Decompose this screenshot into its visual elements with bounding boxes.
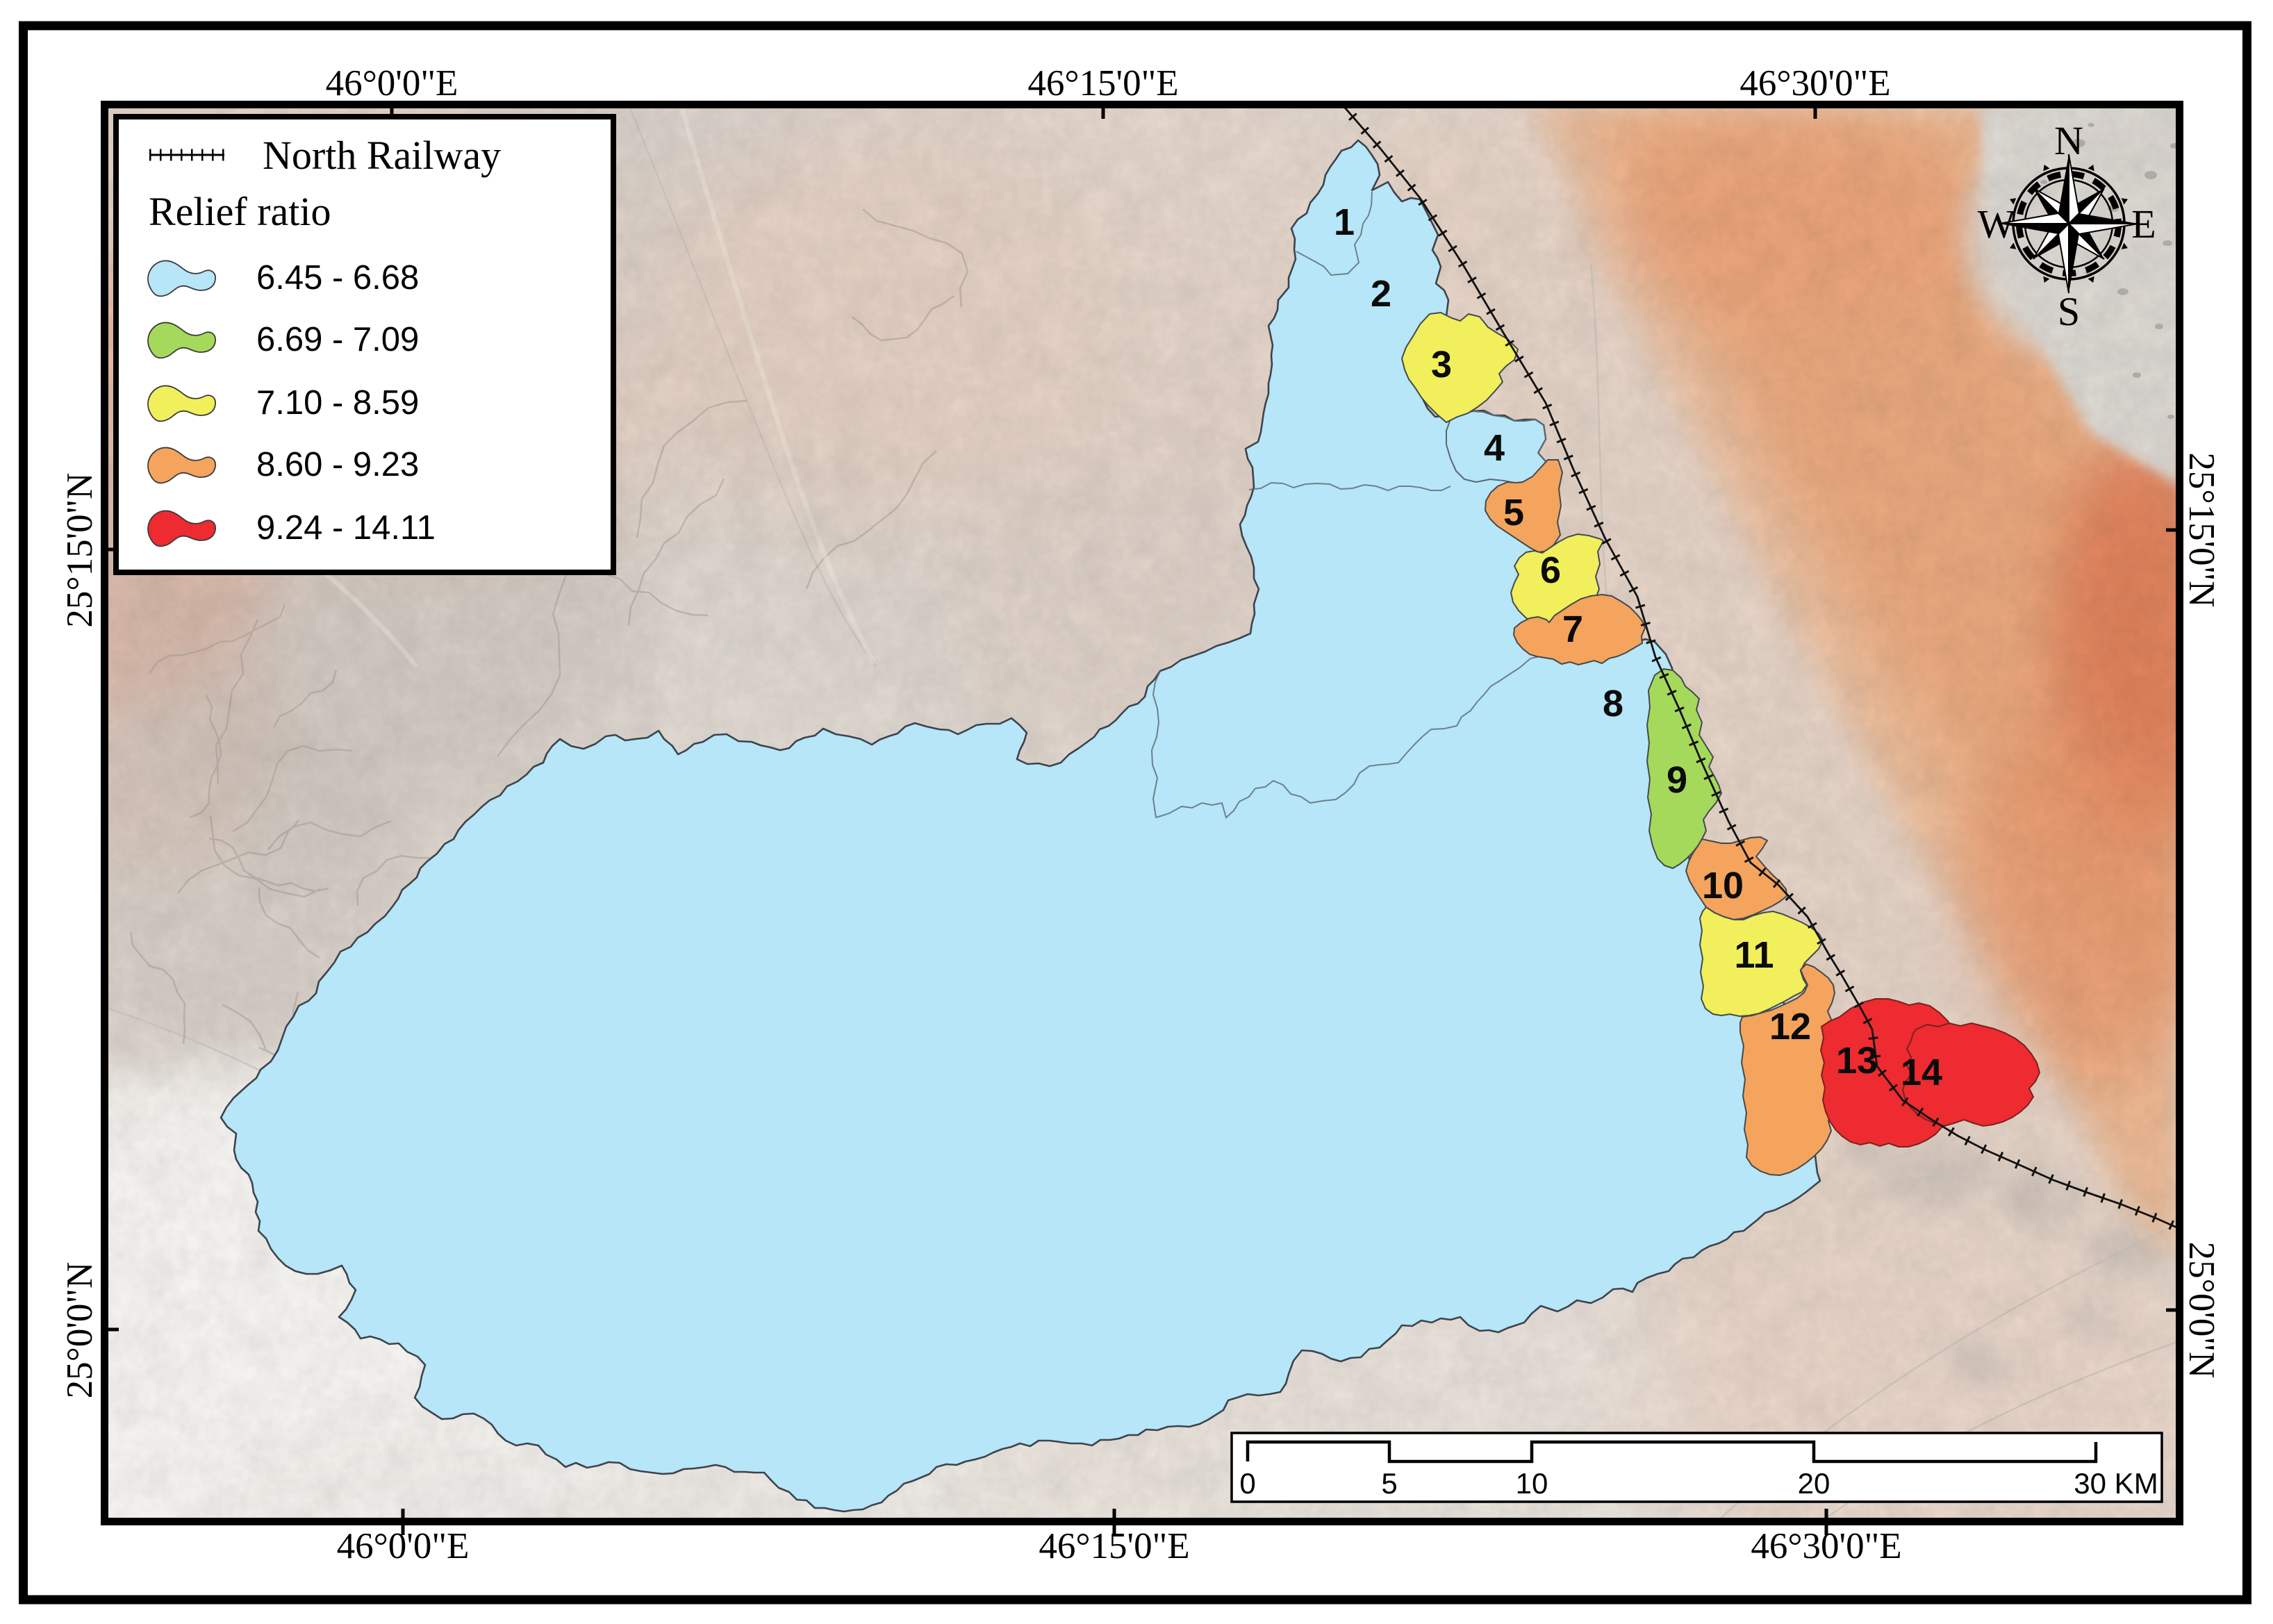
svg-text:9: 9 bbox=[1667, 759, 1687, 801]
svg-text:12: 12 bbox=[1769, 1006, 1811, 1047]
svg-text:10: 10 bbox=[1702, 865, 1744, 906]
svg-text:S: S bbox=[2058, 289, 2080, 334]
svg-text:N: N bbox=[2054, 118, 2083, 163]
svg-text:3: 3 bbox=[1431, 344, 1452, 386]
svg-text:8: 8 bbox=[1603, 683, 1623, 724]
svg-text:46°0'0"E: 46°0'0"E bbox=[326, 63, 458, 103]
svg-text:Relief ratio: Relief ratio bbox=[149, 189, 331, 234]
svg-text:25°15'0"N: 25°15'0"N bbox=[60, 472, 100, 627]
svg-text:5: 5 bbox=[1503, 492, 1524, 533]
svg-text:25°15'0"N: 25°15'0"N bbox=[2181, 452, 2222, 607]
svg-text:25°0'0"N: 25°0'0"N bbox=[2181, 1242, 2222, 1379]
svg-text:13: 13 bbox=[1836, 1040, 1878, 1082]
svg-text:1: 1 bbox=[1334, 201, 1355, 243]
svg-text:6: 6 bbox=[1540, 549, 1561, 591]
svg-text:8.60 - 9.23: 8.60 - 9.23 bbox=[256, 446, 419, 483]
svg-text:2: 2 bbox=[1371, 273, 1391, 315]
svg-text:30 KM: 30 KM bbox=[2074, 1467, 2158, 1500]
svg-text:46°15'0"E: 46°15'0"E bbox=[1039, 1526, 1189, 1566]
svg-text:46°30'0"E: 46°30'0"E bbox=[1739, 63, 1890, 103]
svg-text:7: 7 bbox=[1562, 608, 1583, 650]
svg-text:20: 20 bbox=[1798, 1467, 1830, 1500]
svg-text:W: W bbox=[1978, 201, 2016, 247]
svg-text:5: 5 bbox=[1381, 1467, 1397, 1500]
svg-text:0: 0 bbox=[1239, 1467, 1255, 1500]
svg-text:11: 11 bbox=[1734, 934, 1774, 976]
svg-text:7.10 - 8.59: 7.10 - 8.59 bbox=[256, 384, 419, 422]
svg-text:10: 10 bbox=[1516, 1467, 1548, 1500]
svg-text:46°0'0"E: 46°0'0"E bbox=[337, 1526, 470, 1566]
svg-text:North Railway: North Railway bbox=[263, 133, 501, 178]
svg-text:9.24 - 14.11: 9.24 - 14.11 bbox=[256, 509, 436, 547]
svg-text:25°0'0"N: 25°0'0"N bbox=[60, 1262, 100, 1399]
svg-text:14: 14 bbox=[1901, 1052, 1942, 1093]
svg-text:46°15'0"E: 46°15'0"E bbox=[1027, 63, 1178, 103]
svg-text:46°30'0"E: 46°30'0"E bbox=[1751, 1526, 1901, 1566]
svg-text:4: 4 bbox=[1484, 427, 1505, 469]
svg-text:6.45 - 6.68: 6.45 - 6.68 bbox=[256, 259, 419, 297]
svg-text:6.69 - 7.09: 6.69 - 7.09 bbox=[256, 321, 419, 358]
svg-text:E: E bbox=[2131, 201, 2156, 247]
